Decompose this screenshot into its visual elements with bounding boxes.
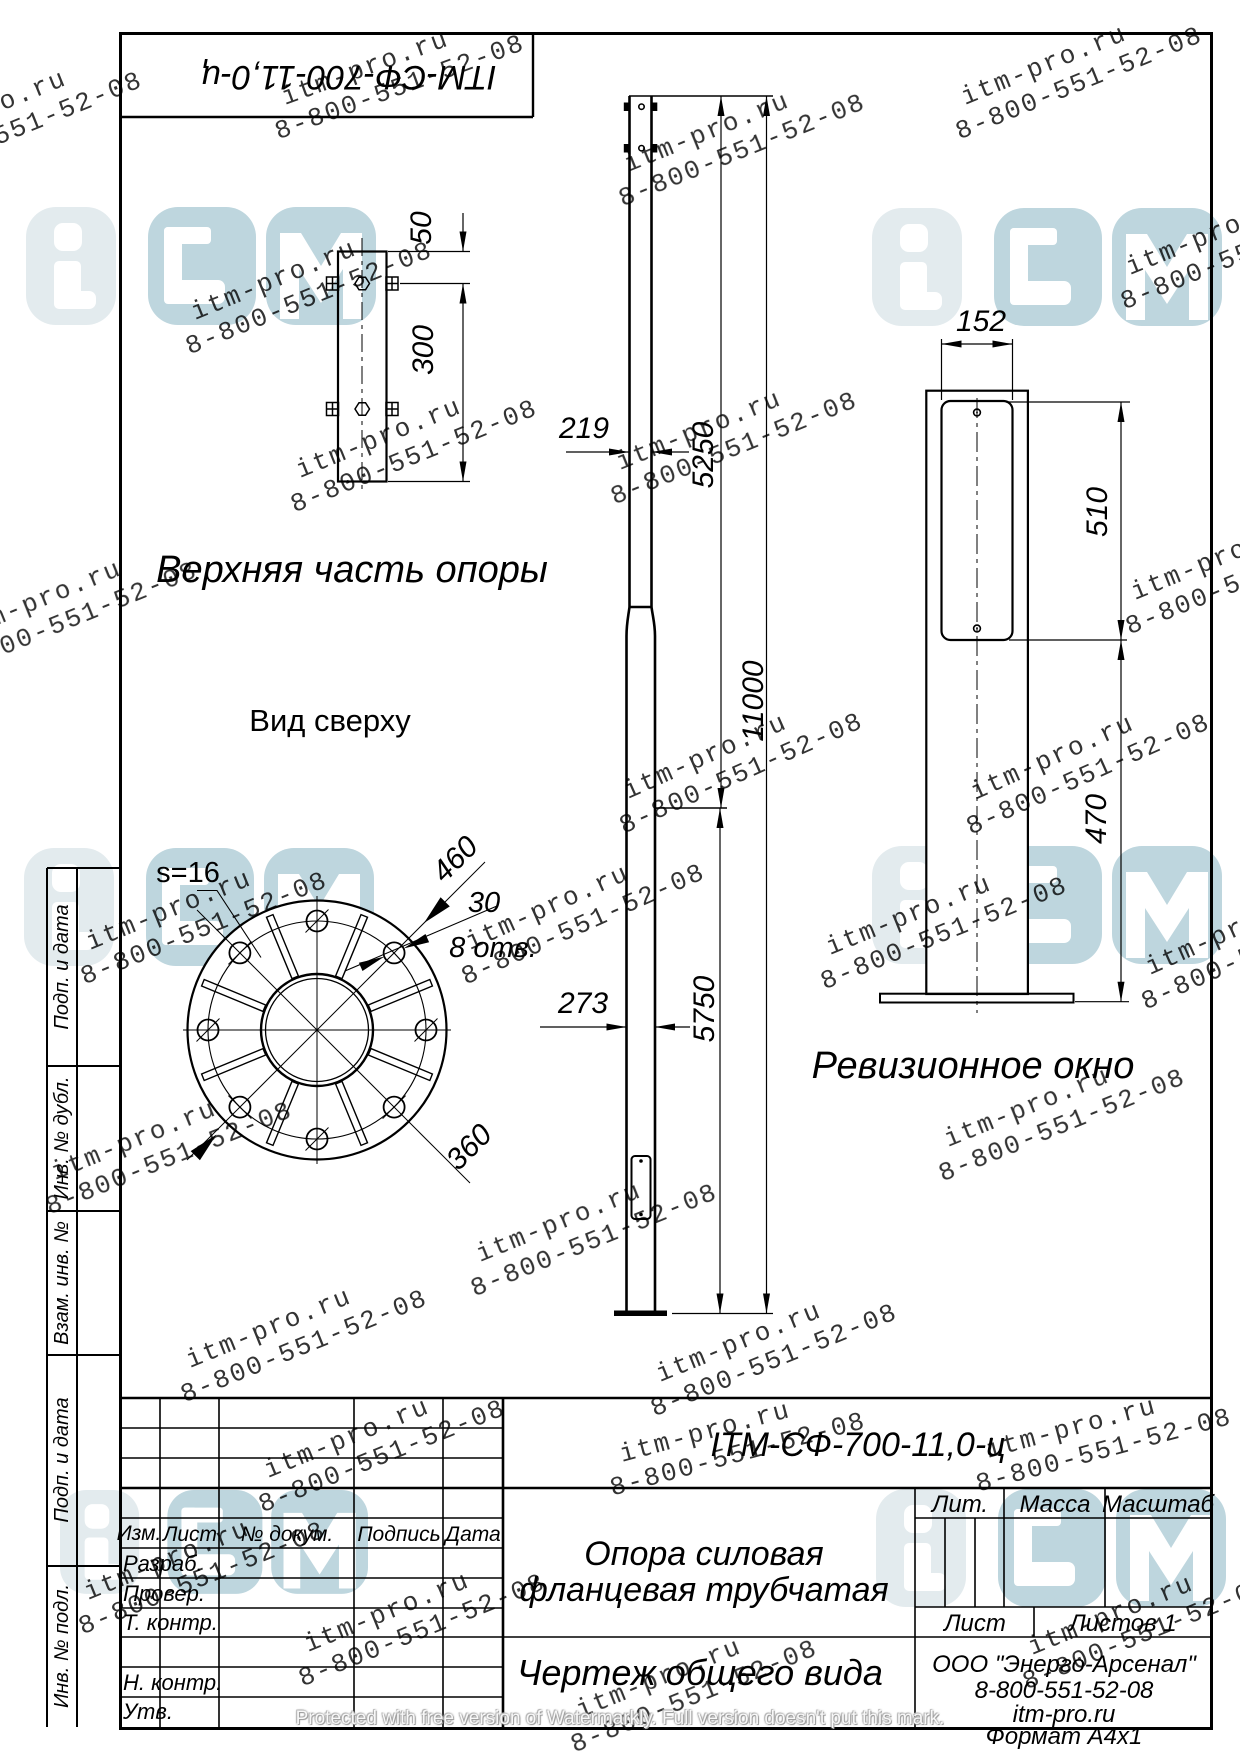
svg-text:8 отв.: 8 отв. xyxy=(449,932,537,964)
svg-text:5250: 5250 xyxy=(687,421,720,488)
svg-text:300: 300 xyxy=(407,325,440,375)
svg-text:Разраб.: Разраб. xyxy=(123,1551,203,1576)
svg-text:510: 510 xyxy=(1081,487,1114,537)
svg-text:30: 30 xyxy=(468,887,500,919)
svg-text:Инв. № подл.: Инв. № подл. xyxy=(51,1584,73,1708)
svg-text:460: 460 xyxy=(426,830,485,889)
svg-text:Н. контр.: Н. контр. xyxy=(123,1670,222,1695)
svg-text:Листов 1: Листов 1 xyxy=(1067,1610,1176,1637)
svg-text:Опора силовая: Опора силовая xyxy=(584,1535,823,1573)
svg-text:ООО "Энерго-Арсенал": ООО "Энерго-Арсенал" xyxy=(932,1651,1197,1678)
svg-text:219: 219 xyxy=(558,412,609,445)
svg-text:5750: 5750 xyxy=(688,975,721,1042)
svg-text:360: 360 xyxy=(440,1118,499,1177)
svg-text:Масштаб: Масштаб xyxy=(1102,1491,1216,1518)
svg-text:Подп. и дата: Подп. и дата xyxy=(51,1397,73,1522)
svg-text:Провер.: Провер. xyxy=(123,1581,205,1606)
svg-text:Лист: Лист xyxy=(942,1610,1006,1637)
svg-text:s=16: s=16 xyxy=(156,857,220,889)
svg-text:Верхняя часть опоры: Верхняя часть опоры xyxy=(156,549,548,591)
svg-text:Масса: Масса xyxy=(1020,1491,1091,1518)
svg-text:Чертеж общего вида: Чертеж общего вида xyxy=(517,1652,883,1693)
svg-text:ITM-СФ-700-11,0-ц: ITM-СФ-700-11,0-ц xyxy=(710,1426,1005,1464)
svg-text:Изм.: Изм. xyxy=(117,1522,162,1545)
svg-text:Подпись: Подпись xyxy=(357,1523,440,1546)
svg-text:Взам. инв. №: Взам. инв. № xyxy=(51,1221,73,1345)
svg-text:Вид сверху: Вид сверху xyxy=(249,703,411,738)
svg-text:50: 50 xyxy=(405,211,438,245)
svg-text:Лист: Лист xyxy=(161,1523,217,1546)
svg-text:Ревизионное окно: Ревизионное окно xyxy=(812,1045,1135,1087)
svg-text:Т. контр.: Т. контр. xyxy=(123,1610,218,1635)
svg-text:11000: 11000 xyxy=(737,660,770,742)
svg-text:470: 470 xyxy=(1080,794,1113,844)
svg-text:Дата: Дата xyxy=(443,1523,500,1546)
svg-text:152: 152 xyxy=(956,305,1006,338)
svg-text:8-800-551-52-08: 8-800-551-52-08 xyxy=(975,1677,1154,1704)
svg-text:№ докум.: № докум. xyxy=(241,1523,334,1546)
svg-text:ITM-СФ-700-11,0-ц: ITM-СФ-700-11,0-ц xyxy=(201,58,496,96)
svg-text:Подп. и дата: Подп. и дата xyxy=(51,904,73,1029)
svg-text:Лит.: Лит. xyxy=(930,1491,988,1518)
svg-text:273: 273 xyxy=(557,987,608,1020)
svg-text:Инв. № дубл.: Инв. № дубл. xyxy=(51,1077,73,1200)
svg-text:фланцевая трубчатая: фланцевая трубчатая xyxy=(519,1571,888,1609)
